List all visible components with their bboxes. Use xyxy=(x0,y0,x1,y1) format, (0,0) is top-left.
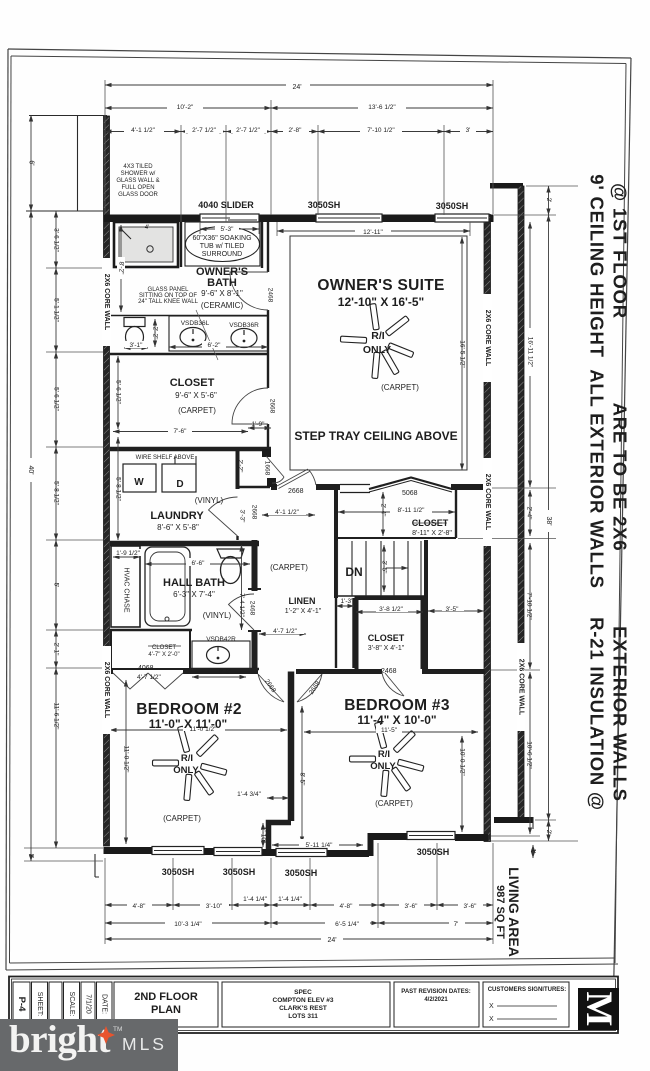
svg-text:2X6 CORE WALL: 2X6 CORE WALL xyxy=(518,659,525,716)
svg-text:9'-6" X 8'-1": 9'-6" X 8'-1" xyxy=(201,289,243,298)
svg-text:3050SH: 3050SH xyxy=(285,868,318,878)
svg-text:6'-2": 6'-2" xyxy=(208,342,222,349)
svg-text:5068: 5068 xyxy=(402,490,418,497)
svg-text:10'-3 1/4": 10'-3 1/4" xyxy=(174,921,202,928)
svg-text:38': 38' xyxy=(545,516,552,525)
svg-text:5'-8 1/2": 5'-8 1/2" xyxy=(115,477,122,501)
svg-text:987 SQ FT: 987 SQ FT xyxy=(494,885,506,939)
svg-text:W: W xyxy=(134,477,144,488)
svg-text:3050SH: 3050SH xyxy=(436,201,469,211)
svg-text:SPEC: SPEC xyxy=(294,989,312,996)
svg-text:2668: 2668 xyxy=(251,505,258,520)
svg-text:EXTERIOR WALLS: EXTERIOR WALLS xyxy=(610,626,631,802)
svg-text:OWNER'S SUITE: OWNER'S SUITE xyxy=(317,277,444,294)
svg-text:ONLY: ONLY xyxy=(173,765,199,776)
svg-text:9' CEILING HEIGHT: 9' CEILING HEIGHT xyxy=(587,174,608,358)
svg-text:10'-0 1/2": 10'-0 1/2" xyxy=(459,748,466,776)
svg-text:5'-6 1/2": 5'-6 1/2" xyxy=(115,380,122,404)
svg-text:6'-6": 6'-6" xyxy=(192,560,206,567)
svg-text:(VINYL): (VINYL) xyxy=(203,611,232,620)
svg-text:COMPTON ELEV #3: COMPTON ELEV #3 xyxy=(273,997,334,1004)
svg-text:13'-6 1/2": 13'-6 1/2" xyxy=(368,104,396,111)
svg-text:7'-6": 7'-6" xyxy=(174,428,188,435)
svg-text:5'-8 1/2": 5'-8 1/2" xyxy=(53,481,60,505)
svg-text:4040 SLIDER: 4040 SLIDER xyxy=(198,200,254,210)
svg-text:24': 24' xyxy=(292,84,301,91)
svg-text:R-21 INSULATION @: R-21 INSULATION @ xyxy=(587,617,608,811)
svg-text:3': 3' xyxy=(466,127,471,134)
svg-text:3'-8 1/2": 3'-8 1/2" xyxy=(379,606,403,613)
svg-text:5': 5' xyxy=(53,583,60,588)
svg-text:2'-7 1/2": 2'-7 1/2" xyxy=(236,127,260,134)
svg-text:5'-11 1/4": 5'-11 1/4" xyxy=(306,842,334,849)
svg-text:2468: 2468 xyxy=(381,668,397,675)
svg-text:VSDB36L: VSDB36L xyxy=(181,320,210,327)
svg-text:8'-5": 8'-5" xyxy=(299,773,306,787)
svg-text:SCALE:: SCALE: xyxy=(68,992,75,1017)
svg-text:3'-8": 3'-8" xyxy=(219,669,233,676)
svg-text:HVAC CHASE: HVAC CHASE xyxy=(123,568,130,613)
svg-text:7/1/20: 7/1/20 xyxy=(85,994,92,1014)
svg-text:LOTS 311: LOTS 311 xyxy=(288,1013,318,1020)
svg-text:GLASS WALL &: GLASS WALL & xyxy=(116,178,159,184)
svg-text:2'-8": 2'-8" xyxy=(289,127,303,134)
svg-text:3050SH: 3050SH xyxy=(223,867,256,877)
svg-text:4': 4' xyxy=(145,225,149,231)
svg-text:PAST REVISION DATES:: PAST REVISION DATES: xyxy=(401,989,470,995)
svg-text:VSDB42R: VSDB42R xyxy=(206,636,236,643)
svg-text:(CARPET): (CARPET) xyxy=(381,383,419,392)
svg-text:2468: 2468 xyxy=(267,288,274,303)
svg-text:5'-3": 5'-3" xyxy=(221,226,235,233)
svg-text:2ND FLOOR: 2ND FLOOR xyxy=(134,991,198,1003)
svg-text:4'-7 1/2": 4'-7 1/2" xyxy=(273,628,297,635)
svg-text:3'-3": 3'-3" xyxy=(239,510,246,524)
svg-text:3050SH: 3050SH xyxy=(417,847,450,857)
svg-text:CLOSET: CLOSET xyxy=(170,377,215,389)
svg-text:4068: 4068 xyxy=(138,665,154,672)
svg-text:4'-8": 4'-8" xyxy=(133,903,147,910)
svg-text:GLASS DOOR: GLASS DOOR xyxy=(118,192,158,198)
svg-text:12'-11": 12'-11" xyxy=(363,229,383,236)
svg-text:3'-1": 3'-1" xyxy=(130,342,144,349)
svg-text:BEDROOM #2: BEDROOM #2 xyxy=(136,701,242,718)
svg-text:(CARPET): (CARPET) xyxy=(163,814,201,823)
svg-text:DATE:: DATE: xyxy=(101,994,108,1014)
svg-text:7'-10 1/2": 7'-10 1/2" xyxy=(367,127,395,134)
svg-text:10'-6 1/2": 10'-6 1/2" xyxy=(526,741,533,769)
svg-text:LINEN: LINEN xyxy=(289,596,316,606)
svg-text:5'-1 1/2": 5'-1 1/2" xyxy=(53,298,60,322)
svg-text:WIRE SHELF ABOVE: WIRE SHELF ABOVE xyxy=(136,455,195,461)
svg-text:BEDROOM #3: BEDROOM #3 xyxy=(344,697,450,714)
svg-text:4'-1 1/2": 4'-1 1/2" xyxy=(131,127,155,134)
svg-text:2X6 CORE WALL: 2X6 CORE WALL xyxy=(484,310,491,367)
svg-text:3'-5": 3'-5" xyxy=(381,561,388,575)
svg-text:9'-6" X 5'-6": 9'-6" X 5'-6" xyxy=(175,391,217,400)
svg-text:CUSTOMERS SIGNITURES:: CUSTOMERS SIGNITURES: xyxy=(488,987,567,993)
svg-text:TM: TM xyxy=(113,1026,122,1033)
svg-text:11'-4" X 10'-0": 11'-4" X 10'-0" xyxy=(357,713,436,727)
svg-text:3'-10": 3'-10" xyxy=(206,903,223,910)
svg-text:4'-1 1/2": 4'-1 1/2" xyxy=(275,509,299,516)
svg-text:7': 7' xyxy=(454,921,459,928)
svg-text:3'-6 1/2": 3'-6 1/2" xyxy=(53,228,60,252)
svg-text:2X6 CORE WALL: 2X6 CORE WALL xyxy=(103,662,110,719)
svg-text:bright: bright xyxy=(9,1018,111,1061)
svg-text:(CARPET): (CARPET) xyxy=(178,406,216,415)
svg-text:PLAN: PLAN xyxy=(151,1004,181,1016)
svg-text:16'-5 1/2": 16'-5 1/2" xyxy=(459,340,466,368)
svg-text:11'-0" X 11'-0": 11'-0" X 11'-0" xyxy=(149,717,227,731)
svg-text:R/I: R/I xyxy=(181,753,193,764)
svg-text:CLARK'S REST: CLARK'S REST xyxy=(279,1005,327,1012)
svg-text:2'-7 1/2": 2'-7 1/2" xyxy=(192,127,216,134)
svg-text:2': 2' xyxy=(545,830,552,835)
svg-text:24': 24' xyxy=(327,937,336,944)
svg-text:STEP TRAY CEILING ABOVE: STEP TRAY CEILING ABOVE xyxy=(294,429,457,443)
svg-text:(CARPET): (CARPET) xyxy=(270,563,308,572)
svg-text:2668: 2668 xyxy=(269,399,276,414)
svg-text:40': 40' xyxy=(27,465,34,474)
svg-text:R/I: R/I xyxy=(378,749,390,760)
svg-text:4X3 TILED: 4X3 TILED xyxy=(123,164,153,170)
svg-text:ALL EXTERIOR WALLS: ALL EXTERIOR WALLS xyxy=(587,369,608,589)
svg-text:MLS: MLS xyxy=(122,1034,167,1054)
svg-text:7'-10 1/2": 7'-10 1/2" xyxy=(526,592,533,620)
svg-text:10'-2": 10'-2" xyxy=(177,104,194,111)
svg-text:3'-6": 3'-6" xyxy=(405,903,419,910)
svg-text:24" TALL KNEE WALL: 24" TALL KNEE WALL xyxy=(138,299,198,305)
svg-text:6'-5 1/4": 6'-5 1/4" xyxy=(335,921,359,928)
svg-text:5'-6 1/2": 5'-6 1/2" xyxy=(53,387,60,411)
svg-text:P-4: P-4 xyxy=(16,997,27,1013)
svg-text:2'-1": 2'-1" xyxy=(53,643,60,657)
svg-text:3'-5": 3'-5" xyxy=(446,606,460,613)
svg-text:4'-8": 4'-8" xyxy=(340,903,354,910)
svg-text:R/I: R/I xyxy=(371,330,385,342)
svg-text:2': 2' xyxy=(28,854,35,859)
svg-text:2468: 2468 xyxy=(249,601,256,616)
svg-text:2'-2": 2'-2" xyxy=(152,327,159,341)
svg-text:ONLY: ONLY xyxy=(370,761,396,772)
svg-text:1'-4 1/4": 1'-4 1/4" xyxy=(243,896,267,903)
svg-text:1'-10": 1'-10" xyxy=(260,827,267,844)
svg-text:LIVING AREA: LIVING AREA xyxy=(506,867,522,957)
svg-text:(CERAMIC): (CERAMIC) xyxy=(201,301,244,310)
svg-text:(CARPET): (CARPET) xyxy=(375,799,413,808)
svg-text:2'-4": 2'-4" xyxy=(380,504,387,518)
svg-text:4'-7" X 2'-0": 4'-7" X 2'-0" xyxy=(148,652,179,658)
svg-text:SURROUND: SURROUND xyxy=(202,251,242,258)
svg-text:12'-10" X 16'-5": 12'-10" X 16'-5" xyxy=(338,295,424,309)
svg-text:2X6 CORE WALL: 2X6 CORE WALL xyxy=(484,474,491,531)
svg-text:8'-11" X 2'-8": 8'-11" X 2'-8" xyxy=(412,530,452,537)
svg-text:7'-4 1/2": 7'-4 1/2" xyxy=(238,593,245,617)
svg-text:16'-11 1/2": 16'-11 1/2" xyxy=(527,337,534,368)
svg-text:SHEET:: SHEET: xyxy=(36,992,43,1017)
svg-text:11'-0 1/2": 11'-0 1/2" xyxy=(123,746,130,774)
svg-text:60"X36" SOAKING: 60"X36" SOAKING xyxy=(192,235,251,242)
svg-text:2668: 2668 xyxy=(288,488,304,495)
svg-text:3050SH: 3050SH xyxy=(162,867,195,877)
svg-text:1': 1' xyxy=(530,849,537,854)
svg-text:X: X xyxy=(489,1003,494,1010)
svg-text:1'-3": 1'-3" xyxy=(341,598,355,605)
svg-text:CLOSET: CLOSET xyxy=(368,633,405,643)
svg-text:1'-9 1/2": 1'-9 1/2" xyxy=(116,550,140,557)
svg-text:M: M xyxy=(578,992,619,1027)
svg-text:11'-6 1/2": 11'-6 1/2" xyxy=(53,703,60,731)
svg-text:3050SH: 3050SH xyxy=(308,200,341,210)
svg-text:6'-3" X 7'-4": 6'-3" X 7'-4" xyxy=(173,590,215,599)
svg-text:1'-2" X 4'-1": 1'-2" X 4'-1" xyxy=(285,608,322,615)
svg-text:X: X xyxy=(489,1016,494,1023)
svg-text:@ 1ST FLOOR: @ 1ST FLOOR xyxy=(610,183,631,319)
svg-text:2'-4": 2'-4" xyxy=(526,507,533,521)
svg-text:ONLY: ONLY xyxy=(363,344,391,356)
svg-text:1'-9": 1'-9" xyxy=(252,421,266,428)
svg-text:8'-2": 8'-2" xyxy=(118,262,125,276)
svg-text:TUB w/ TILED: TUB w/ TILED xyxy=(200,243,245,250)
svg-text:6': 6' xyxy=(28,160,35,165)
svg-text:FULL OPEN: FULL OPEN xyxy=(121,185,154,191)
svg-text:1668: 1668 xyxy=(264,461,271,476)
svg-text:4/2/2021: 4/2/2021 xyxy=(424,997,448,1003)
svg-text:4'-7 1/2": 4'-7 1/2" xyxy=(137,674,161,681)
svg-text:BATH: BATH xyxy=(207,277,237,289)
svg-text:1'-4 3/4": 1'-4 3/4" xyxy=(237,791,261,798)
svg-text:11'-5": 11'-5" xyxy=(381,727,398,734)
svg-text:2X6 CORE WALL: 2X6 CORE WALL xyxy=(103,274,110,331)
svg-text:SHOWER w/: SHOWER w/ xyxy=(121,171,156,177)
svg-text:2': 2' xyxy=(545,198,552,203)
svg-text:(VINYL): (VINYL) xyxy=(195,496,224,505)
svg-text:1'-4 1/4": 1'-4 1/4" xyxy=(278,896,302,903)
svg-text:VSDB36R: VSDB36R xyxy=(229,322,259,329)
svg-text:2'-2": 2'-2" xyxy=(237,460,244,474)
svg-text:8'-11 1/2": 8'-11 1/2" xyxy=(398,507,426,514)
svg-text:D: D xyxy=(176,479,183,490)
svg-text:HALL BATH: HALL BATH xyxy=(163,577,225,589)
svg-text:8'-6" X 5'-8": 8'-6" X 5'-8" xyxy=(157,523,199,532)
svg-text:3'-8" X 4'-1": 3'-8" X 4'-1" xyxy=(368,645,405,652)
svg-text:ARE TO BE 2X6: ARE TO BE 2X6 xyxy=(610,403,631,552)
svg-text:3'-6": 3'-6" xyxy=(464,903,478,910)
svg-text:LAUNDRY: LAUNDRY xyxy=(150,510,204,522)
svg-text:DN: DN xyxy=(345,565,362,579)
